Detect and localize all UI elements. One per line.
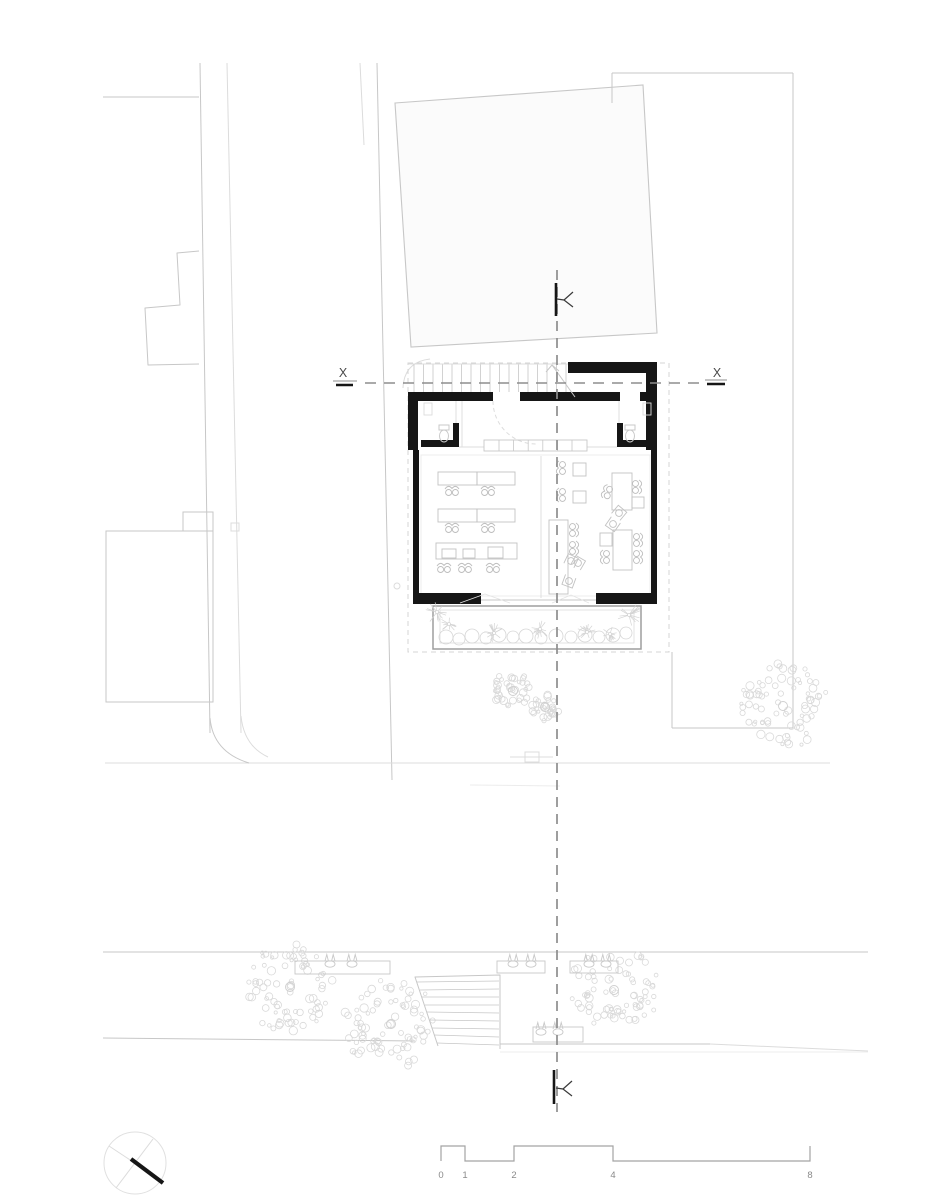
chair-pair-icon — [634, 533, 643, 547]
chair-pair-icon — [633, 480, 642, 494]
chair-pair-icon — [634, 550, 643, 564]
scale-bar-steps — [441, 1146, 810, 1161]
scale-label-2: 2 — [511, 1170, 516, 1181]
planter-pot-icon — [536, 1023, 546, 1036]
grass-plant-icon — [578, 624, 597, 638]
grass-plant-icon — [441, 618, 456, 631]
chair-pair-icon — [445, 523, 459, 532]
grass-plant-icon — [484, 623, 501, 642]
scale-label-8: 8 — [807, 1170, 812, 1181]
scale-label-0: 0 — [438, 1170, 443, 1181]
hall-furniture — [436, 461, 644, 594]
scale-bar: 01248 — [438, 1146, 812, 1181]
chair-pair-icon — [445, 486, 459, 495]
chair-pair-icon — [600, 550, 609, 564]
grass-plant-icon — [532, 621, 547, 639]
tree-symbol — [570, 952, 658, 1025]
grass-plant-icon — [603, 627, 616, 642]
chair-pair-icon — [570, 541, 579, 555]
compass-needle-icon — [131, 1159, 163, 1183]
grass-plant-icon — [618, 605, 640, 626]
north-compass — [104, 1132, 166, 1194]
site-plan-drawing: XX01248 — [0, 0, 927, 1200]
site-plan-page: XX01248 — [0, 0, 927, 1200]
scale-label-1: 1 — [462, 1170, 467, 1181]
grass-plant-icon — [426, 602, 447, 621]
tree-symbol — [740, 660, 828, 748]
chair-icon — [571, 555, 586, 570]
chair-pair-icon — [570, 523, 579, 537]
toilet-icon — [625, 425, 635, 442]
roof-outline-dashed — [408, 363, 669, 652]
toilet-icon — [439, 425, 449, 442]
chair-pair-icon — [486, 563, 500, 572]
trees — [246, 660, 828, 1069]
chair-icon — [562, 574, 576, 588]
chair-pair-icon — [458, 563, 472, 572]
tree-symbol — [493, 674, 533, 708]
scale-label-4: 4 — [610, 1170, 615, 1181]
section-label-x-left: X — [339, 366, 348, 380]
chair-pair-icon — [481, 523, 495, 532]
chair-pair-icon — [437, 563, 451, 572]
tree-symbol — [246, 941, 336, 1035]
site-context — [103, 63, 868, 1052]
section-label-x-right: X — [713, 366, 722, 380]
street-furniture — [295, 955, 618, 1050]
chair-icon — [605, 517, 620, 532]
tree-symbol — [341, 979, 435, 1070]
chair-pair-icon — [481, 486, 495, 495]
planter-bed — [426, 602, 641, 649]
planter-pot-icon — [553, 1023, 563, 1036]
chair-icon — [612, 505, 627, 520]
